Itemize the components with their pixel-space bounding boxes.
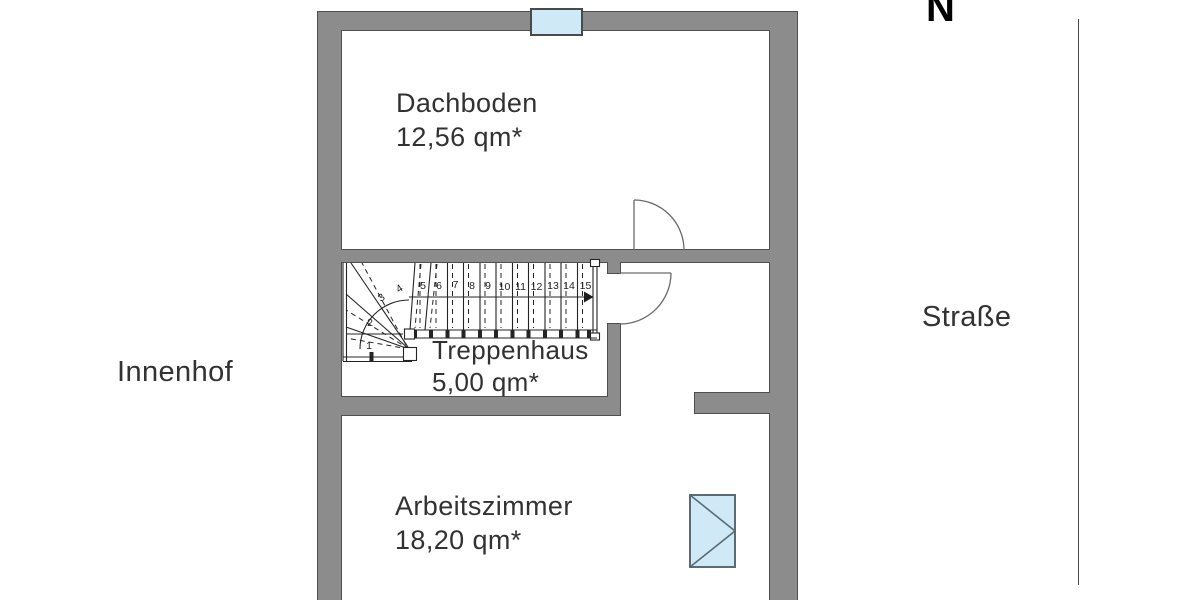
stair-step-number: 6 bbox=[436, 280, 442, 292]
stair-step-number: 1 bbox=[366, 340, 372, 352]
stair-step-number: 4 bbox=[394, 282, 406, 295]
room-label-dachboden: Dachboden 12,56 qm* bbox=[396, 86, 538, 154]
room-name: Arbeitszimmer bbox=[395, 489, 573, 523]
room-label-treppenhaus: Treppenhaus 5,00 qm* bbox=[432, 334, 589, 398]
stair-step-number: 13 bbox=[547, 280, 559, 292]
stairwell-door-swing-icon bbox=[620, 273, 671, 324]
room-name: Treppenhaus bbox=[432, 334, 589, 366]
top-window-icon bbox=[531, 9, 582, 35]
north-indicator: N bbox=[926, 0, 955, 31]
room-area: 12,56 qm* bbox=[396, 120, 538, 154]
room-label-arbeitszimmer: Arbeitszimmer 18,20 qm* bbox=[395, 489, 573, 557]
study-window-icon bbox=[690, 495, 735, 567]
stair-step-number: 15 bbox=[580, 280, 592, 292]
stair-step-number: 8 bbox=[469, 280, 475, 292]
floorplan-canvas: 1 2 3 4 5 6 7 8 9 10 11 12 13 14 15 Dach… bbox=[0, 0, 1200, 600]
floorplan-drawing: 1 2 3 4 5 6 7 8 9 10 11 12 13 14 15 bbox=[0, 0, 1200, 600]
stair-step-number: 12 bbox=[531, 281, 543, 293]
room-area: 5,00 qm* bbox=[432, 366, 589, 398]
room-name: Dachboden bbox=[396, 86, 538, 120]
stair-direction-arrow-icon bbox=[584, 292, 594, 303]
context-label-strasse: Straße bbox=[922, 301, 1011, 334]
stair-step-number: 2 bbox=[367, 317, 373, 329]
attic-door-swing-icon bbox=[634, 200, 684, 250]
stair-step-number: 10 bbox=[499, 281, 511, 293]
stair-step-number: 5 bbox=[420, 280, 426, 292]
stair-step-number: 7 bbox=[453, 279, 459, 291]
context-label-innenhof: Innenhof bbox=[117, 356, 233, 389]
room-area: 18,20 qm* bbox=[395, 523, 573, 557]
stair-step-number: 11 bbox=[515, 281, 526, 293]
stair-step-number: 14 bbox=[563, 280, 575, 292]
stair-step-number: 9 bbox=[485, 280, 491, 292]
